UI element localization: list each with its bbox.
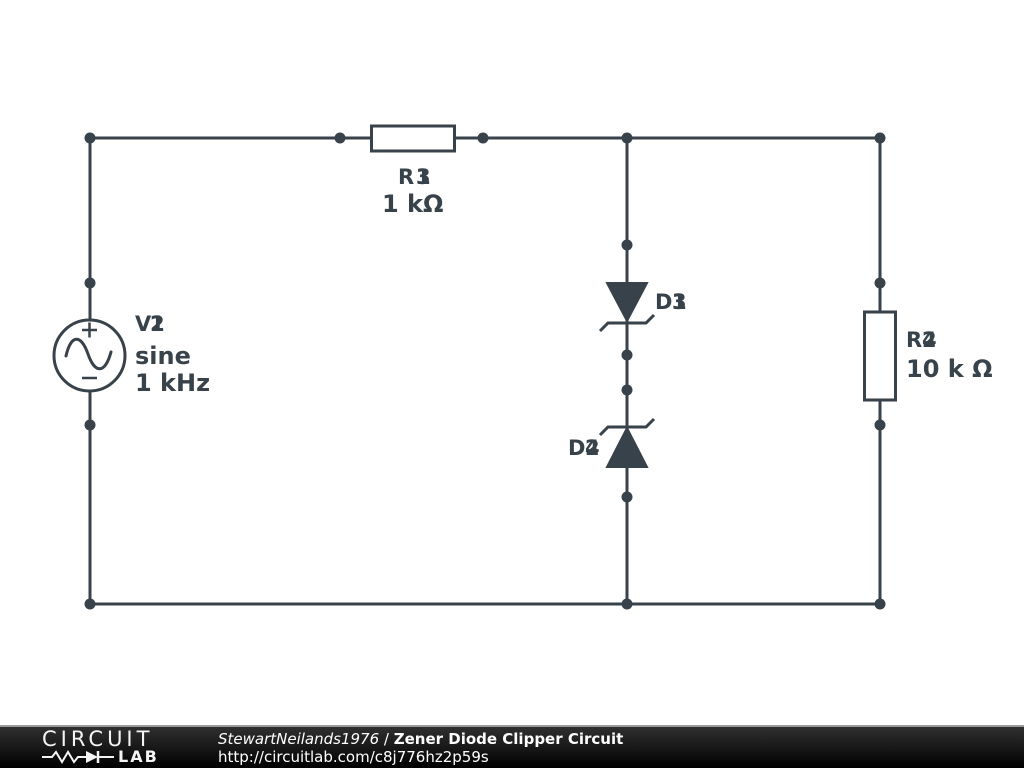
resistor-r3 <box>372 126 455 151</box>
zener-diode-d3 <box>600 283 654 331</box>
junction-dot <box>875 599 886 610</box>
circuit-url: http://circuitlab.com/c8j776hz2p59s <box>218 748 623 766</box>
junction-dot <box>622 492 633 503</box>
author-name: StewartNeilands1976 <box>218 730 379 748</box>
diode-d2-triangle <box>607 428 647 467</box>
r2-ref-digit: 2 <box>922 328 937 352</box>
junction-dot <box>875 278 886 289</box>
junction-dot <box>622 385 633 396</box>
junction-dot <box>622 599 633 610</box>
credit-line: StewartNeilands1976 / Zener Diode Clippe… <box>218 730 623 748</box>
junction-dot <box>875 420 886 431</box>
zener-diode-d2 <box>600 419 654 467</box>
logo-lab-text: LAB <box>118 749 159 765</box>
r2-value-label: 10 k Ω <box>906 355 992 383</box>
label-resistor-r2: R 4 2 10 k Ω <box>906 328 992 383</box>
circuit-title: Zener Diode Clipper Circuit <box>394 730 624 748</box>
junction-dot <box>622 240 633 251</box>
d3-ref-prefix: D <box>655 290 672 314</box>
r3-value-label: 1 kΩ <box>382 190 443 218</box>
resistor-r2-body <box>865 312 896 400</box>
junction-dot <box>85 599 96 610</box>
circuit-schematic: V 1 2 sine 1 kHz R 1 3 1 kΩ D 1 3 D 4 2 … <box>0 0 1024 729</box>
footer-bar: CIRCUIT LAB StewartNeilands1976 / Zener … <box>0 725 1024 768</box>
r2-ref-prefix: R <box>906 328 922 352</box>
credit-separator: / <box>379 730 394 748</box>
d3-ref-digit: 3 <box>672 290 687 314</box>
source-frequency-label: 1 kHz <box>135 369 210 397</box>
label-resistor-r3: R 1 3 1 kΩ <box>382 165 443 218</box>
junction-dot <box>622 350 633 361</box>
junction-dot <box>85 133 96 144</box>
d2-ref-digit: 2 <box>585 436 600 460</box>
d2-ref-prefix: D <box>568 436 585 460</box>
junction-dot <box>875 133 886 144</box>
label-source: V 1 2 sine 1 kHz <box>135 312 210 397</box>
source-waveform-label: sine <box>135 342 191 370</box>
junction-dot <box>622 133 633 144</box>
voltage-source-v2 <box>54 320 125 391</box>
diode-d3-triangle <box>607 283 647 321</box>
junction-dot <box>478 133 489 144</box>
footer-credits: StewartNeilands1976 / Zener Diode Clippe… <box>218 730 623 766</box>
r3-ref-digit: 3 <box>416 165 431 189</box>
logo-schematic-icon <box>42 750 116 764</box>
label-zener-d3: D 1 3 <box>655 290 687 314</box>
r3-ref-prefix: R <box>398 165 414 189</box>
source-ref-digit: 2 <box>150 312 165 336</box>
resistor-r3-body <box>372 126 455 151</box>
resistor-r2 <box>865 312 896 400</box>
junction-dot <box>85 278 96 289</box>
logo-circuit-text: CIRCUIT <box>42 729 192 750</box>
circuitlab-logo: CIRCUIT LAB <box>42 729 192 765</box>
junction-dot <box>85 420 96 431</box>
junction-dot <box>335 133 346 144</box>
label-zener-d2: D 4 2 <box>568 436 600 460</box>
